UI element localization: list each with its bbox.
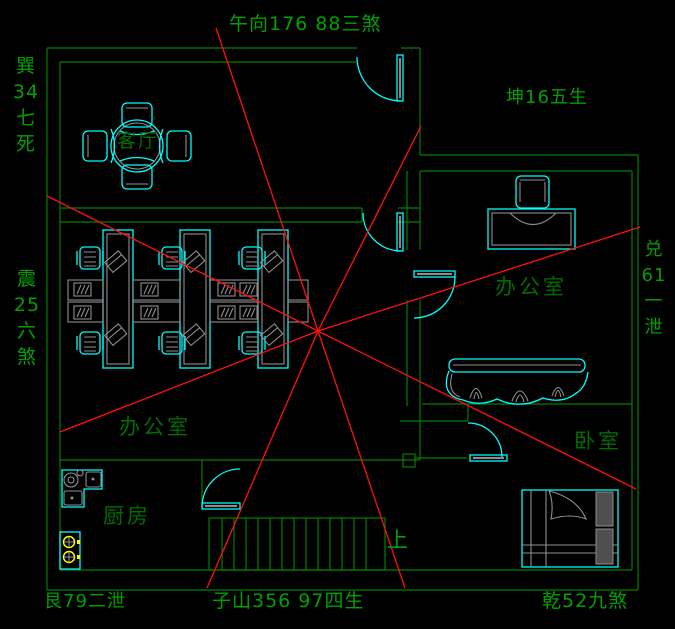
desk-chair xyxy=(516,176,549,208)
compass-label-bottom-right: 乾52九煞 xyxy=(542,588,628,615)
door-bedroom xyxy=(468,423,507,461)
door-stairs xyxy=(202,469,240,509)
dining-chair-south xyxy=(120,158,154,190)
pillow xyxy=(596,492,613,526)
executive-desk xyxy=(488,176,575,249)
room-label-private-office: 办公室 xyxy=(495,271,567,301)
compass-label-top-left: 巽 34 七 死 xyxy=(8,53,44,157)
office-chair xyxy=(77,332,103,354)
dining-chair-west xyxy=(83,129,115,163)
compass-label-right: 兑 61 一 泄 xyxy=(636,237,672,341)
room-label-kitchen: 厨房 xyxy=(103,500,151,530)
stairs-up-label: 上 xyxy=(387,527,409,554)
stove xyxy=(60,532,80,569)
pillow xyxy=(596,529,613,564)
compass-label-top: 午向176 88三煞 xyxy=(229,11,381,38)
office-cubicles xyxy=(68,230,308,368)
door-top xyxy=(357,55,403,101)
sofa xyxy=(446,359,588,404)
staircase xyxy=(209,518,385,570)
room-label-living-room: 客厅 xyxy=(117,126,159,153)
blanket-fold xyxy=(549,491,586,519)
door-living xyxy=(363,213,403,251)
sink xyxy=(64,473,78,487)
bed xyxy=(522,490,618,567)
compass-label-bottom-left: 艮79二泄 xyxy=(44,588,126,615)
office-chair xyxy=(77,247,103,269)
office-chair xyxy=(239,247,265,269)
compass-label-top-right: 坤16五生 xyxy=(506,84,588,111)
kitchen-counter xyxy=(62,470,102,507)
compass-label-bottom-center: 子山356 97四生 xyxy=(212,588,364,615)
office-chair xyxy=(159,332,185,354)
dining-chair-east xyxy=(160,129,192,163)
room-label-open-office: 办公室 xyxy=(119,411,191,441)
compass-label-left: 震 25 六 煞 xyxy=(9,266,45,370)
room-label-bedroom: 卧室 xyxy=(574,425,622,455)
cad-canvas: 午向176 88三煞 巽 34 七 死 坤16五生 震 25 六 煞 兑 61 … xyxy=(0,0,675,629)
